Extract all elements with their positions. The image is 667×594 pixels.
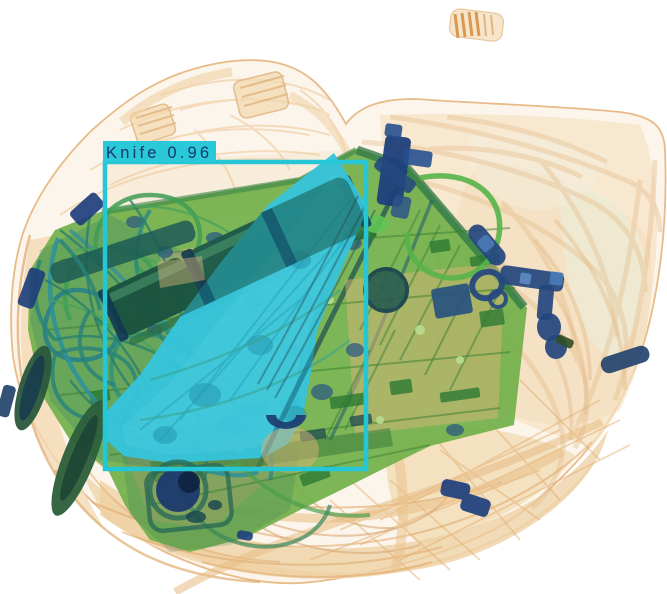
svg-text:Knife 0.96: Knife 0.96 <box>106 144 212 162</box>
